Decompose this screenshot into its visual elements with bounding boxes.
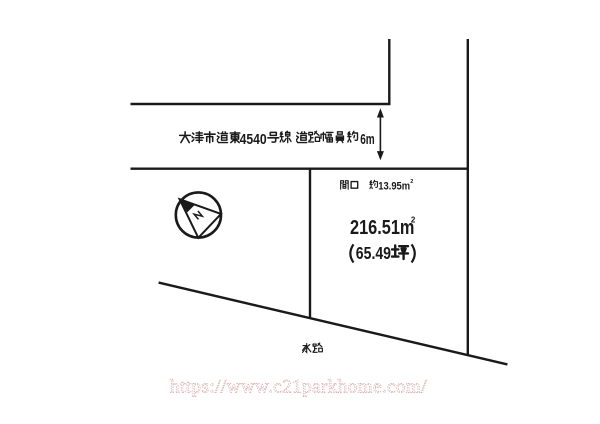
svg-text:6m: 6m [360,131,375,148]
svg-text:13.95m: 13.95m [378,180,410,192]
svg-text:4540: 4540 [240,131,267,148]
svg-text:216.51m: 216.51m [350,216,414,239]
svg-text:2: 2 [411,215,416,224]
svg-text:65.49: 65.49 [356,243,391,263]
svg-text:https://www.c21parkhome.com/: https://www.c21parkhome.com/ [170,377,427,398]
svg-text:2: 2 [410,179,413,185]
